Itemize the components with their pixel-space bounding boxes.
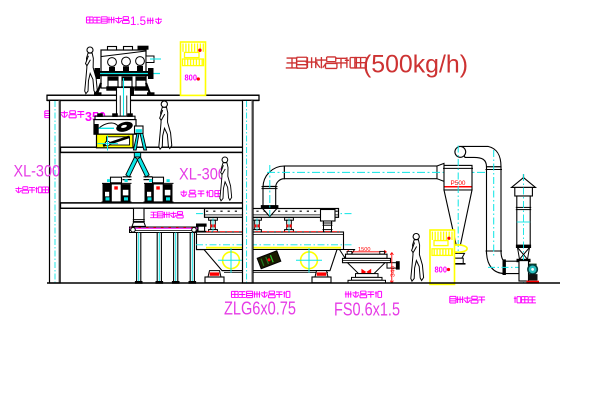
svg-text:ZLG6x0.75: ZLG6x0.75 <box>224 298 296 319</box>
svg-text:(500kg/h): (500kg/h) <box>363 51 468 79</box>
svg-text:340: 340 <box>391 266 397 277</box>
svg-text:1500: 1500 <box>358 247 371 253</box>
svg-text:800: 800 <box>185 73 198 83</box>
svg-text:800: 800 <box>435 265 448 275</box>
svg-text:XL-300: XL-300 <box>179 166 226 184</box>
svg-text:1.5: 1.5 <box>130 16 146 28</box>
svg-text:XL-300: XL-300 <box>14 162 61 180</box>
svg-text:FS0.6x1.5: FS0.6x1.5 <box>334 299 400 320</box>
